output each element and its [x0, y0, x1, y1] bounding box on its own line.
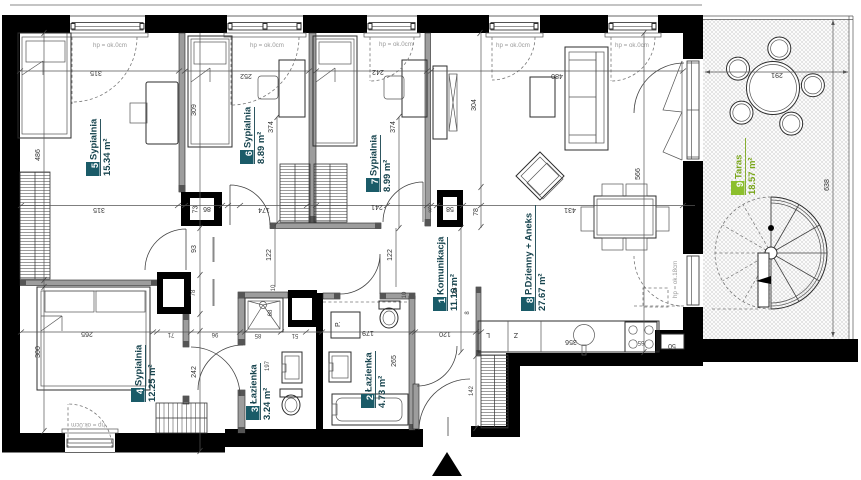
svg-text:93: 93 [191, 245, 198, 253]
svg-text:315: 315 [93, 206, 105, 213]
svg-text:51: 51 [291, 332, 298, 338]
svg-text:68: 68 [268, 309, 274, 316]
svg-text:10: 10 [271, 284, 277, 291]
svg-text:142: 142 [469, 385, 475, 396]
svg-text:242: 242 [191, 366, 198, 378]
svg-text:120: 120 [439, 330, 451, 337]
svg-text:1: 1 [437, 297, 448, 303]
svg-text:78: 78 [473, 208, 480, 216]
svg-text:hp = ok.0cm: hp = ok.0cm [71, 421, 105, 428]
svg-text:315: 315 [90, 69, 102, 76]
svg-text:197: 197 [265, 360, 271, 371]
svg-text:10: 10 [402, 291, 408, 298]
svg-text:78: 78 [191, 289, 197, 296]
svg-text:Sypialnia: Sypialnia [88, 118, 99, 160]
svg-text:15.34 m²: 15.34 m² [101, 138, 112, 176]
svg-text:309: 309 [191, 104, 198, 116]
svg-text:96: 96 [211, 331, 218, 337]
svg-text:Z: Z [513, 331, 518, 338]
svg-text:566: 566 [635, 168, 642, 180]
svg-text:Komunikacja: Komunikacja [435, 236, 446, 295]
svg-text:486: 486 [35, 149, 42, 161]
svg-text:252: 252 [240, 72, 252, 79]
svg-text:2: 2 [365, 395, 376, 400]
svg-text:85: 85 [254, 332, 261, 338]
svg-text:65: 65 [637, 339, 644, 345]
svg-text:3: 3 [250, 407, 261, 412]
svg-text:122: 122 [266, 249, 273, 261]
svg-text:8.99 m²: 8.99 m² [381, 160, 392, 192]
svg-text:638: 638 [824, 179, 831, 191]
svg-text:Łazienka: Łazienka [363, 352, 374, 392]
svg-text:356: 356 [565, 338, 577, 345]
svg-text:Sypialnia: Sypialnia [368, 134, 379, 176]
svg-text:hp = ok.0cm: hp = ok.0cm [250, 42, 284, 49]
svg-text:58: 58 [446, 205, 454, 212]
svg-text:4.73 m²: 4.73 m² [376, 376, 387, 408]
svg-text:4: 4 [135, 388, 146, 394]
svg-text:300: 300 [35, 346, 42, 358]
svg-text:71: 71 [167, 331, 174, 337]
svg-text:6: 6 [244, 151, 255, 156]
svg-text:50: 50 [668, 342, 676, 349]
svg-text:8.89 m²: 8.89 m² [255, 132, 266, 164]
svg-text:Sypialnia: Sypialnia [242, 106, 253, 148]
svg-text:291: 291 [771, 71, 783, 78]
svg-text:3.24 m²: 3.24 m² [261, 388, 272, 420]
svg-text:11.16 m²: 11.16 m² [448, 274, 459, 311]
svg-text:374: 374 [390, 121, 397, 133]
svg-text:hp = ok.0cm: hp = ok.0cm [496, 42, 530, 49]
svg-text:431: 431 [564, 206, 576, 213]
svg-text:L: L [486, 331, 490, 338]
svg-text:179: 179 [362, 329, 374, 336]
svg-text:hp = ok.0cm: hp = ok.0cm [379, 41, 413, 48]
svg-text:P.: P. [335, 321, 342, 327]
svg-text:122: 122 [387, 249, 394, 261]
svg-text:8: 8 [525, 298, 536, 303]
svg-text:480: 480 [551, 72, 563, 79]
svg-text:Łazienka: Łazienka [248, 364, 259, 404]
svg-text:265: 265 [391, 355, 398, 367]
svg-text:12.25 m²: 12.25 m² [146, 364, 157, 402]
svg-text:73: 73 [193, 206, 200, 214]
svg-text:174: 174 [258, 206, 270, 213]
svg-text:374: 374 [268, 121, 275, 133]
svg-text:18.57 m²: 18.57 m² [746, 157, 757, 195]
svg-text:Taras: Taras [733, 155, 744, 179]
svg-text:304: 304 [471, 99, 478, 111]
svg-text:hp = ok.0cm: hp = ok.0cm [93, 42, 127, 49]
svg-text:9: 9 [735, 182, 746, 187]
svg-text:P.Dzienny + Aneks: P.Dzienny + Aneks [523, 213, 534, 295]
svg-text:5: 5 [90, 162, 101, 168]
svg-text:Sypialnia: Sypialnia [133, 344, 144, 386]
svg-text:265: 265 [81, 330, 93, 337]
svg-text:242: 242 [372, 68, 384, 75]
svg-text:hp = ok.18cm: hp = ok.18cm [672, 261, 679, 298]
svg-text:7: 7 [370, 179, 381, 184]
svg-text:241: 241 [371, 203, 383, 210]
svg-text:27.67 m²: 27.67 m² [536, 273, 547, 311]
svg-text:86: 86 [203, 205, 211, 212]
